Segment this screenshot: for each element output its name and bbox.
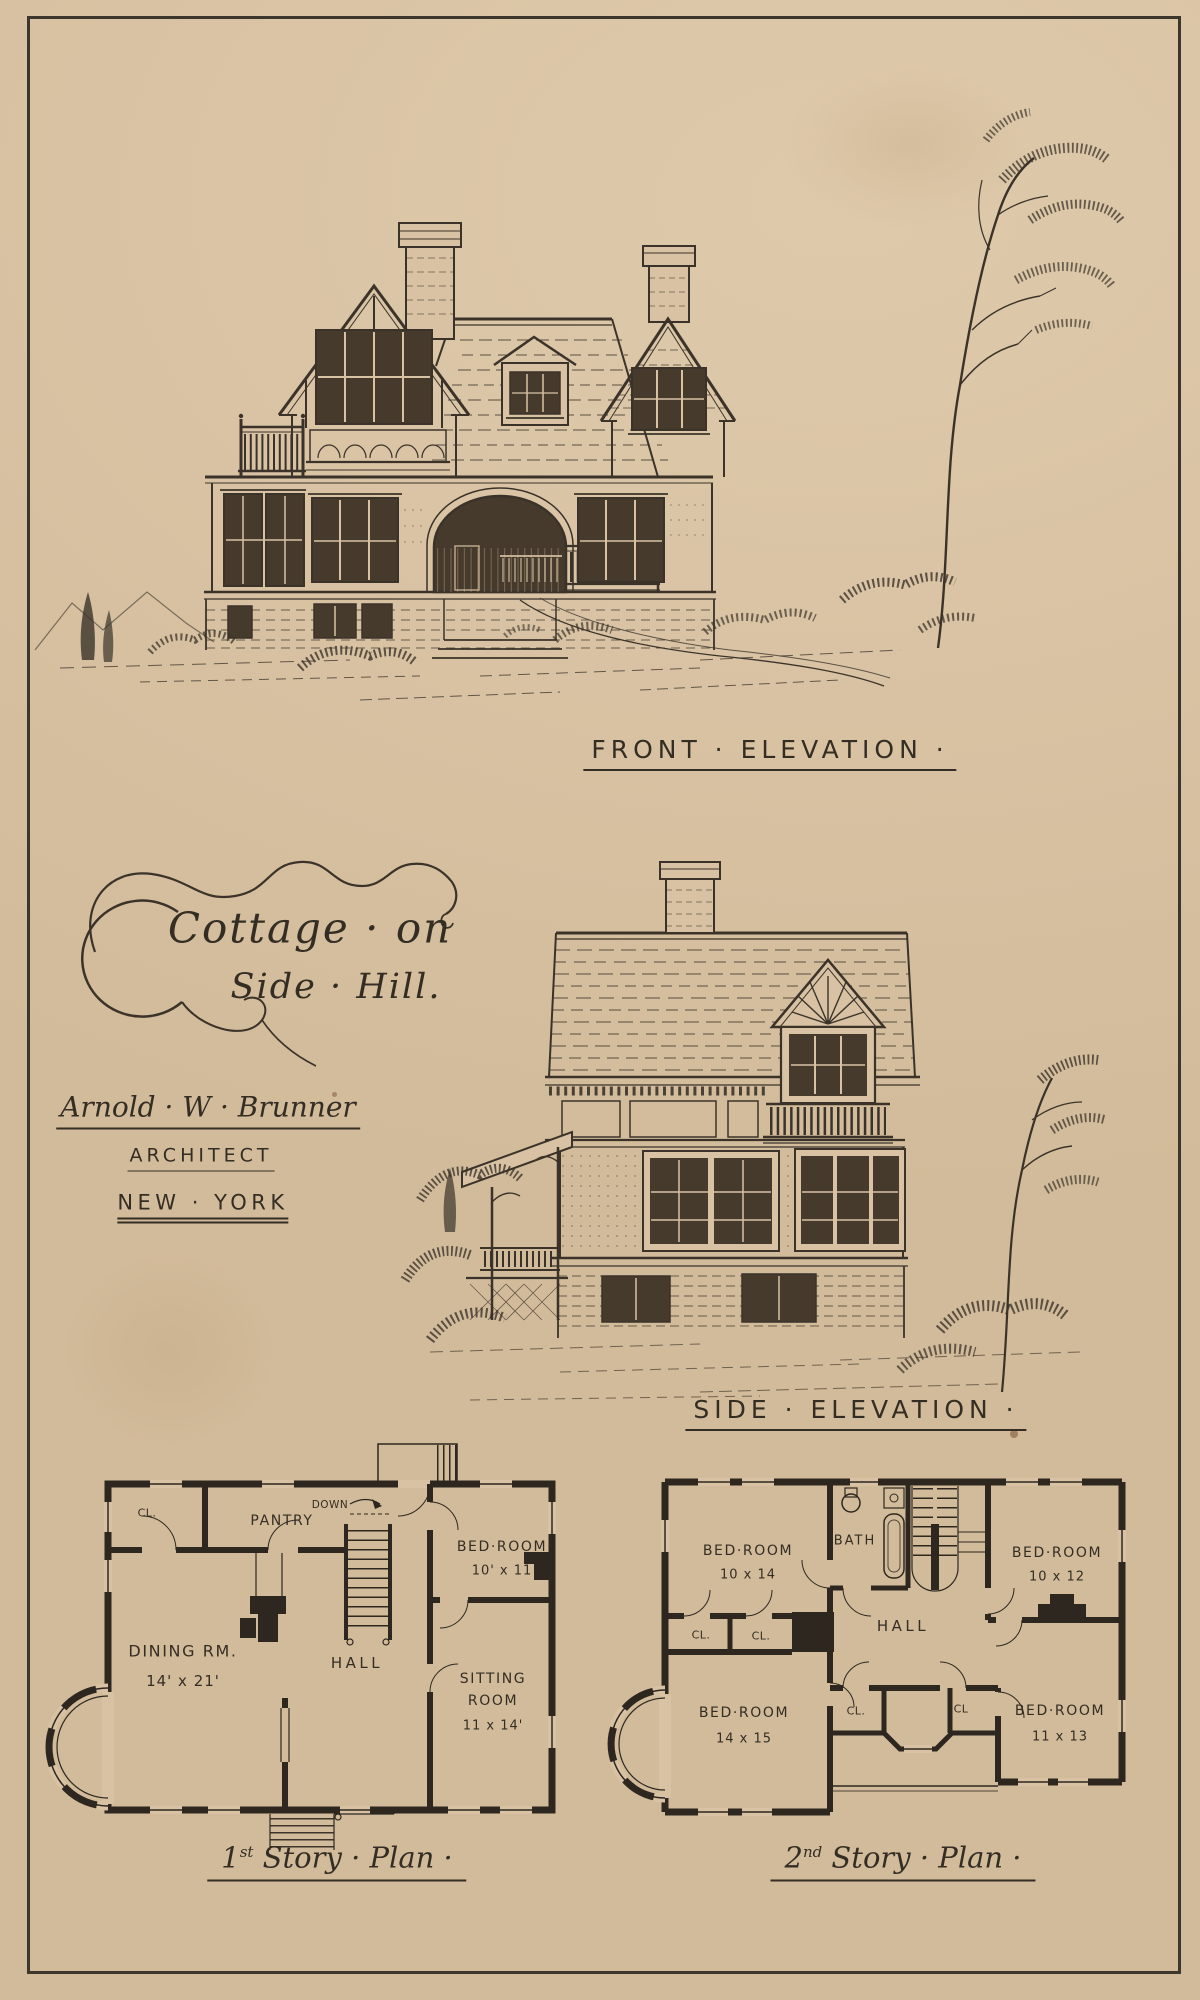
plate-title-line2: Side · Hill.: [231, 967, 442, 1007]
room-label-hall-2: HALL: [877, 1617, 929, 1635]
side-window-group-a: [643, 1151, 779, 1251]
second-story-plan-drawing: [611, 1478, 1126, 1816]
title-flourish: [82, 862, 456, 1066]
room-label-hall-1: HALL: [331, 1654, 383, 1672]
room-label-closet-s-2: CL: [954, 1703, 969, 1716]
room-label-pantry: PANTRY: [250, 1513, 313, 1529]
stairs-down-label: DOWN: [312, 1499, 349, 1511]
plate-drawings: [0, 0, 1200, 2000]
room-label-closet-1: CL.: [138, 1507, 157, 1520]
room-label-bedroom-se: BED·ROOM: [1015, 1703, 1105, 1719]
side-elevation-drawing: [405, 862, 1106, 1400]
front-tree: [920, 112, 1122, 648]
room-label-closet-mid-1: CL.: [692, 1629, 711, 1642]
front-steps: [432, 599, 568, 658]
room-size-bedroom-sw: 14 x 15: [716, 1732, 772, 1747]
room-label-bedroom-sw: BED·ROOM: [699, 1705, 789, 1721]
side-chimney: [660, 862, 720, 933]
room-label-sitting-1: SITTING: [460, 1671, 527, 1687]
right-chimney: [643, 246, 695, 322]
front-elevation-drawing: [35, 112, 1122, 700]
room-label-closet-s-1: CL.: [847, 1705, 866, 1718]
room-label-closet-mid-2: CL.: [752, 1630, 771, 1643]
room-size-bedroom-nw: 10 x 14: [720, 1568, 776, 1583]
room-size-bedroom-1: 10' x 11: [472, 1564, 533, 1579]
plate-page: { "colors": { "paper": "#d8c2a3", "ink":…: [0, 0, 1200, 2000]
side-ground: [430, 1344, 1080, 1400]
room-label-bedroom-nw: BED·ROOM: [703, 1543, 793, 1559]
left-chimney: [399, 223, 461, 339]
room-label-bedroom-ne: BED·ROOM: [1012, 1545, 1102, 1561]
first-plan-caption: 1st Story · Plan ·: [207, 1841, 466, 1882]
architect-name: Arnold · W · Brunner: [56, 1091, 360, 1130]
room-size-dining: 14' x 21': [146, 1672, 220, 1690]
architect-city: NEW · YORK: [117, 1191, 288, 1224]
side-window-group-b: [795, 1149, 905, 1251]
side-porch: [462, 1132, 572, 1320]
front-elevation-caption: FRONT · ELEVATION ·: [583, 735, 956, 771]
room-size-bedroom-ne: 10 x 12: [1029, 1570, 1085, 1585]
room-size-bedroom-se: 11 x 13: [1032, 1730, 1088, 1745]
side-elevation-caption: SIDE · ELEVATION ·: [685, 1395, 1026, 1431]
room-size-sitting: 11 x 14': [463, 1719, 524, 1734]
room-label-dining: DINING RM.: [128, 1642, 237, 1661]
second-plan-caption: 2nd Story · Plan ·: [770, 1841, 1035, 1882]
side-balcony-gable: [763, 960, 893, 1143]
room-label-sitting-2: ROOM: [468, 1693, 518, 1709]
front-dormer: [494, 337, 576, 425]
room-label-bath: BATH: [834, 1534, 877, 1549]
architect-title: ARCHITECT: [128, 1145, 275, 1172]
first-story-plan-drawing: [49, 1444, 556, 1850]
porch-arch: [427, 488, 573, 592]
left-balcony: [238, 414, 306, 477]
right-gable: [601, 319, 735, 477]
plate-title-line1: Cottage · on: [168, 904, 452, 953]
room-label-bedroom-1: BED·ROOM: [457, 1539, 547, 1555]
